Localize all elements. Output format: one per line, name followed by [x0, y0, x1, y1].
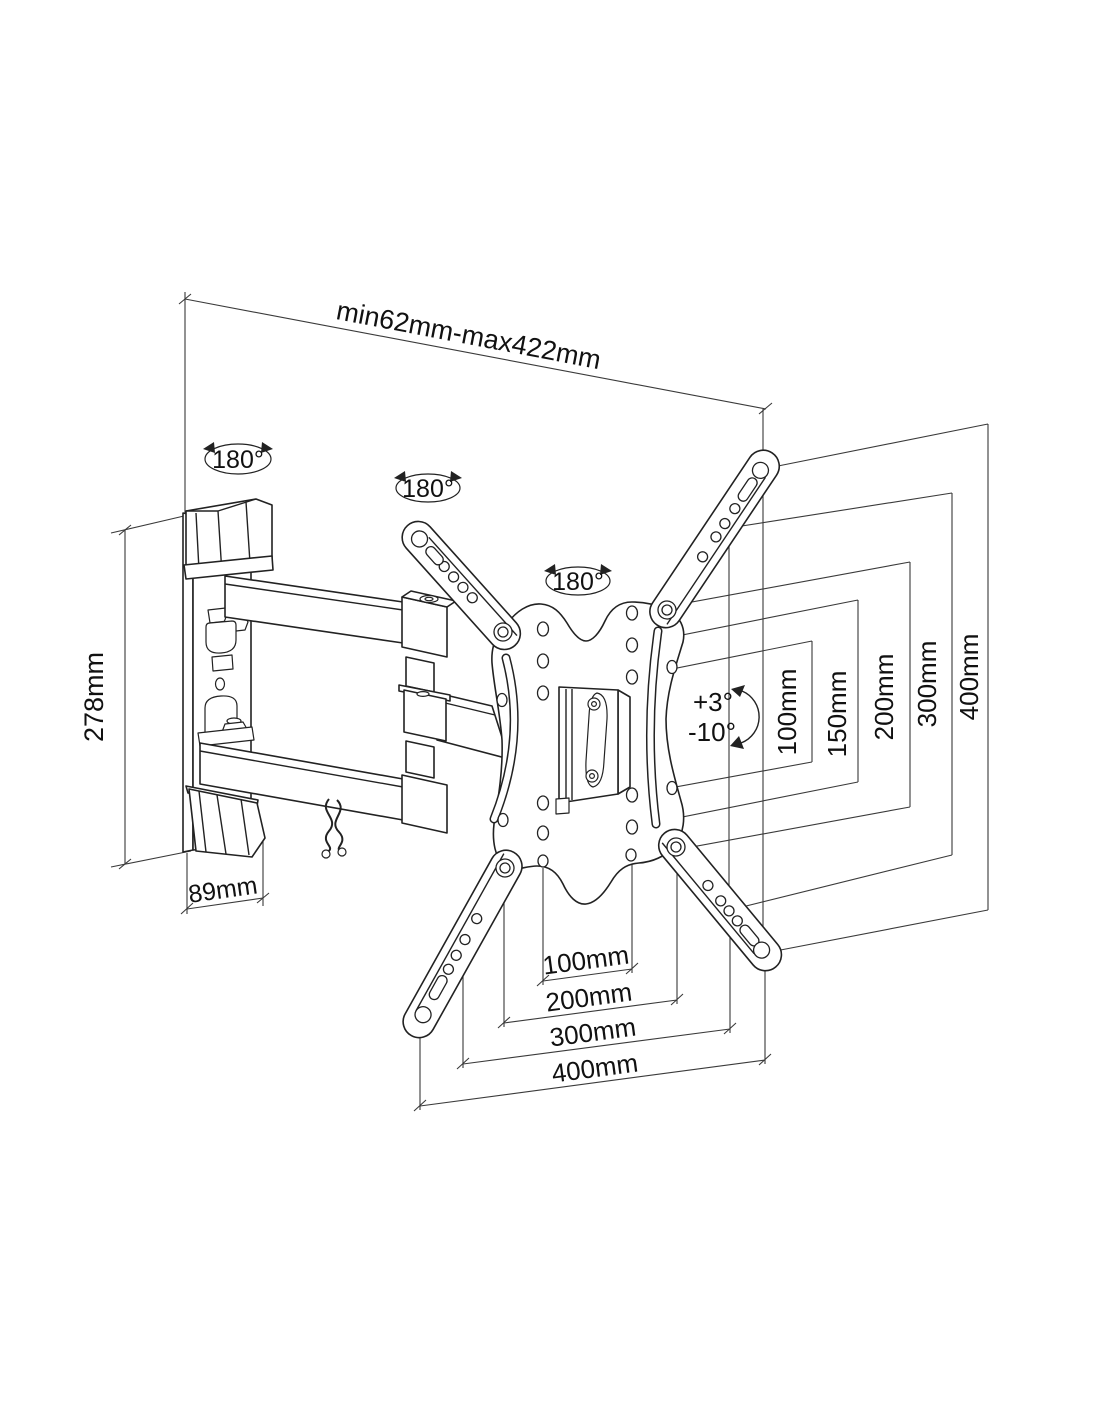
swivel-label-plate: 180° [552, 568, 604, 596]
vesa-width-100-label: 100mm [541, 940, 631, 981]
vesa-width-300-label: 300mm [548, 1012, 638, 1053]
bracket-depth-label: 89mm [187, 871, 260, 908]
tilt-down-label: -10° [688, 717, 736, 747]
swivel-label-wall: 180° [212, 446, 264, 474]
vesa-height-400-label: 400mm [954, 634, 984, 721]
swivel-indicator-plate: 180° [544, 564, 612, 596]
vesa-width-400-label: 400mm [550, 1048, 640, 1089]
vesa-width-200-label: 200mm [544, 977, 634, 1018]
diagram-canvas: 180° 180° 180° +3° -10° min62mm-max422mm… [0, 0, 1100, 1422]
bracket-height-label: 278mm [79, 652, 109, 742]
vesa-height-200-label: 200mm [869, 654, 899, 741]
swivel-indicator-wall: 180° [203, 442, 273, 474]
swivel-indicator-arm: 180° [394, 471, 462, 503]
tilt-up-label: +3° [693, 687, 733, 717]
tv-mount-technical-drawing: 180° 180° 180° +3° -10° min62mm-max422mm… [0, 0, 1100, 1422]
swivel-label-arm: 180° [402, 475, 454, 503]
extension-arm-lower-right [652, 823, 788, 977]
tilt-indicator: +3° -10° [688, 685, 759, 749]
vesa-height-100-label: 100mm [772, 669, 802, 756]
vesa-height-150-label: 150mm [822, 671, 852, 758]
vesa-height-300-label: 300mm [912, 641, 942, 728]
extension-arm-upper-right [644, 444, 786, 634]
